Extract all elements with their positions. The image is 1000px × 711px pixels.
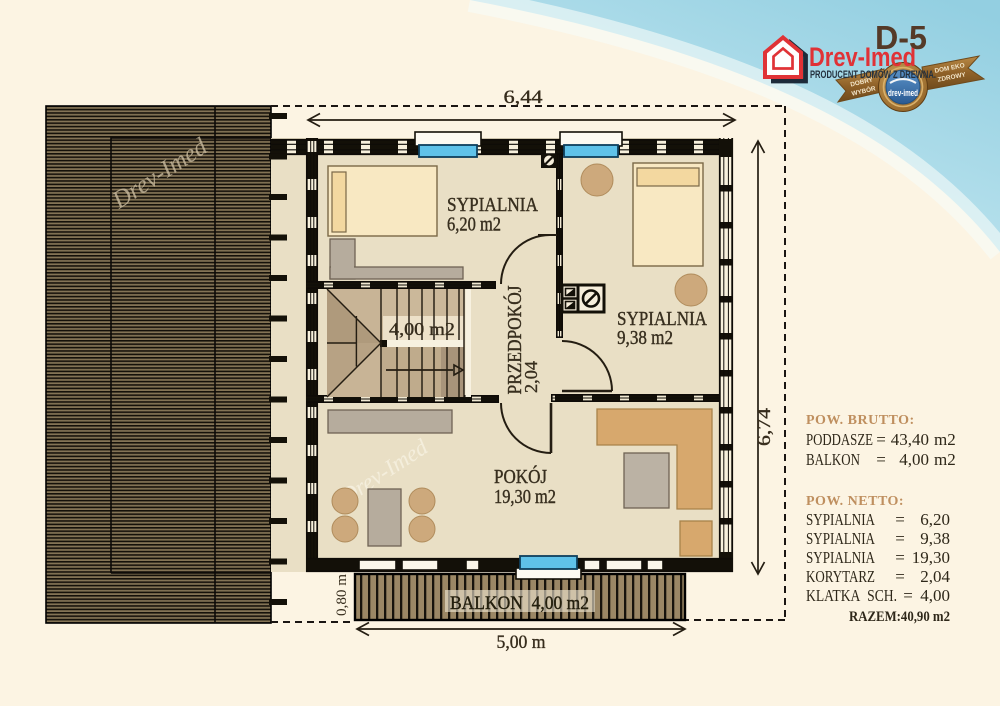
svg-text:=: =	[876, 450, 886, 469]
svg-text:RAZEM:40,90 m2: RAZEM:40,90 m2	[849, 609, 950, 625]
svg-text:6,74: 6,74	[754, 407, 775, 446]
svg-text:SYPIALNIA: SYPIALNIA	[806, 510, 876, 529]
svg-text:6,20: 6,20	[920, 510, 950, 529]
svg-text:SYPIALNIA: SYPIALNIA	[806, 548, 876, 567]
svg-text:4,00: 4,00	[899, 450, 929, 469]
svg-text:9,38 m2: 9,38 m2	[617, 328, 673, 349]
svg-text:PRODUCENT DOMÓW Z DREWNA.: PRODUCENT DOMÓW Z DREWNA.	[810, 68, 936, 81]
svg-text:=: =	[903, 586, 913, 605]
svg-text:19,30 m2: 19,30 m2	[494, 487, 556, 508]
svg-text:5,00 m: 5,00 m	[497, 633, 547, 653]
svg-text:SYPIALNIA: SYPIALNIA	[617, 309, 707, 330]
svg-text:=: =	[895, 510, 905, 529]
svg-text:2,04: 2,04	[521, 361, 541, 393]
svg-text:SYPIALNIA: SYPIALNIA	[447, 195, 538, 216]
svg-text:4,00 m2: 4,00 m2	[389, 319, 455, 339]
svg-text:POW. BRUTTO:: POW. BRUTTO:	[806, 413, 915, 428]
svg-text:SYPIALNIA: SYPIALNIA	[806, 529, 876, 548]
svg-text:BALKON 4,00 m2: BALKON 4,00 m2	[450, 593, 589, 614]
svg-text:0,80 m: 0,80 m	[334, 573, 350, 616]
svg-text:KORYTARZ: KORYTARZ	[806, 567, 875, 586]
svg-text:6,20 m2: 6,20 m2	[447, 215, 501, 236]
svg-text:=: =	[895, 548, 905, 567]
svg-text:9,38: 9,38	[920, 529, 950, 548]
svg-text:2,04: 2,04	[920, 567, 950, 586]
svg-text:=: =	[895, 529, 905, 548]
svg-text:POKÓJ: POKÓJ	[494, 466, 547, 488]
svg-text:=: =	[895, 567, 905, 586]
svg-text:43,40: 43,40	[891, 430, 929, 449]
svg-text:4,00: 4,00	[920, 586, 950, 605]
svg-text:PODDASZE: PODDASZE	[806, 430, 873, 449]
svg-text:m2: m2	[934, 450, 956, 469]
svg-text:m2: m2	[934, 430, 956, 449]
svg-text:19,30: 19,30	[912, 548, 950, 567]
svg-text:BALKON: BALKON	[806, 450, 860, 469]
svg-text:drev-imed: drev-imed	[888, 88, 918, 98]
svg-text:KLATKA SCH.: KLATKA SCH.	[806, 586, 897, 605]
svg-text:D-5: D-5	[875, 19, 927, 56]
svg-text:=: =	[876, 430, 886, 449]
svg-text:6,44: 6,44	[504, 87, 544, 108]
svg-text:POW. NETTO:: POW. NETTO:	[806, 494, 904, 509]
